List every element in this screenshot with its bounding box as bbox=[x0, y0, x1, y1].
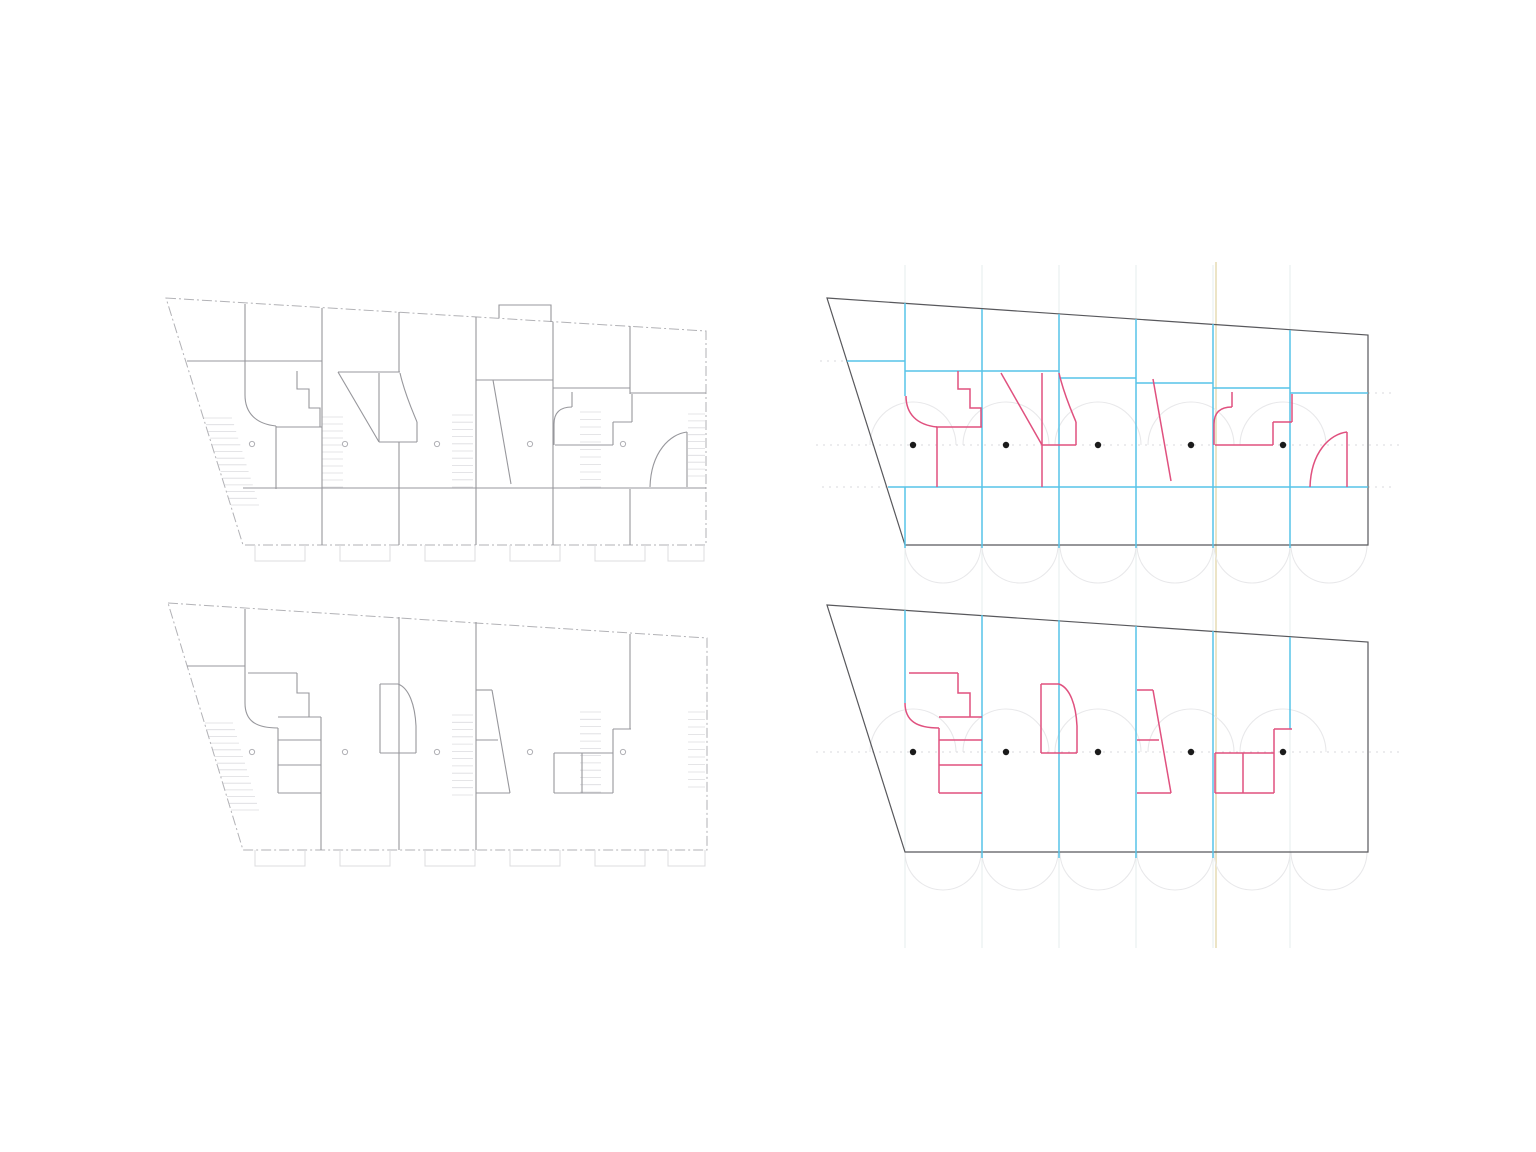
column-dot bbox=[1095, 442, 1101, 448]
architectural-drawing-sheet bbox=[0, 0, 1536, 1152]
stair-hatch-2 bbox=[452, 415, 473, 487]
structural-diagram-lower-level bbox=[816, 605, 1402, 890]
stair-hatch-4 bbox=[688, 712, 705, 787]
column-dot bbox=[910, 749, 916, 755]
column-marker bbox=[249, 749, 254, 754]
walls bbox=[187, 304, 706, 545]
partition-lines bbox=[847, 303, 1368, 548]
column-dot bbox=[1280, 442, 1286, 448]
column-marker bbox=[342, 749, 347, 754]
structural-diagram-upper-level bbox=[816, 298, 1402, 583]
stair-hatch-diagonal bbox=[204, 418, 259, 505]
column-dot bbox=[1003, 442, 1009, 448]
column-marker bbox=[434, 749, 439, 754]
column-dot bbox=[1188, 442, 1194, 448]
walls bbox=[187, 609, 631, 850]
stair-hatch-2 bbox=[452, 715, 473, 795]
column-dot bbox=[1280, 749, 1286, 755]
datum-dashes bbox=[816, 361, 1402, 487]
stair-hatch-4 bbox=[688, 414, 705, 476]
facade-tabs bbox=[255, 545, 704, 561]
column-marker bbox=[620, 441, 625, 446]
stair-hatch-3 bbox=[580, 712, 601, 792]
column-marker bbox=[342, 441, 347, 446]
stair-hatch-3 bbox=[580, 412, 601, 487]
facade-tabs bbox=[255, 850, 705, 866]
partition-lines bbox=[905, 610, 1290, 858]
column-marker bbox=[620, 749, 625, 754]
floor-plan-lower-level bbox=[168, 603, 707, 866]
drawing-canvas bbox=[0, 0, 1536, 1152]
guide-arcs-upper bbox=[870, 402, 1326, 445]
stair-hatch-1 bbox=[322, 417, 343, 487]
column-dot bbox=[1003, 749, 1009, 755]
column-gridlines bbox=[905, 265, 1290, 948]
column-dot bbox=[910, 442, 916, 448]
column-marker bbox=[527, 749, 532, 754]
floor-plan-upper-level bbox=[166, 298, 706, 561]
column-marker bbox=[249, 441, 254, 446]
column-markers bbox=[249, 749, 625, 754]
column-dot bbox=[1188, 749, 1194, 755]
column-marker bbox=[527, 441, 532, 446]
stair-hatch-diagonal bbox=[205, 723, 259, 810]
feature-walls bbox=[905, 673, 1292, 793]
grid-underlay bbox=[905, 262, 1290, 948]
column-dot bbox=[1095, 749, 1101, 755]
site-outline bbox=[168, 603, 707, 850]
column-markers bbox=[249, 441, 625, 446]
column-marker bbox=[434, 441, 439, 446]
